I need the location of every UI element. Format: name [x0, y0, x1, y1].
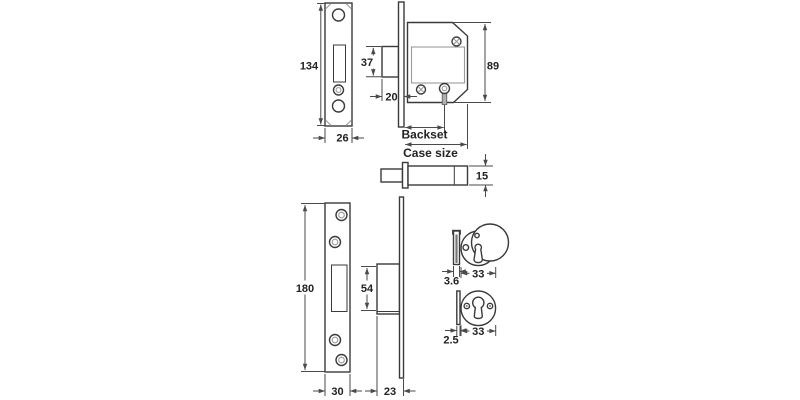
lock-case-side-view	[382, 2, 468, 127]
bolt-block	[377, 264, 400, 314]
dim-bolt-thickness: 15	[469, 154, 493, 197]
case-height-label: 89	[487, 61, 499, 73]
faceplate-width-label: 30	[331, 386, 343, 398]
faceplate-height-label: 180	[296, 283, 314, 295]
open-diameter-label: 33	[472, 326, 484, 338]
covered-escutcheon	[461, 224, 509, 266]
open-thickness-label: 2.5	[443, 335, 458, 347]
bolt-tip	[381, 169, 403, 182]
lock-technical-drawing: 134 26 37 20	[0, 0, 800, 400]
covered-thickness-label: 3.6	[444, 276, 459, 288]
strike-width-label: 26	[336, 133, 348, 145]
dim-faceplate-height: 180	[294, 204, 325, 372]
bolt-block-depth-label: 23	[384, 386, 396, 398]
dim-covered-thickness: 3.6	[442, 266, 467, 288]
covered-diameter-label: 33	[472, 268, 484, 280]
dim-strike-width: 26	[313, 128, 364, 145]
dim-bolt-block-height: 54	[358, 267, 376, 311]
forend-side-view	[377, 197, 404, 378]
strike-plate-front-view	[325, 3, 352, 126]
deadbolt-thrown	[382, 47, 399, 78]
open-escutcheon	[461, 291, 496, 326]
bolt-flange	[403, 163, 409, 189]
bolt-height-label: 37	[361, 57, 373, 69]
dim-covered-diameter: 33	[461, 267, 496, 280]
dim-open-thickness: 2.5	[443, 326, 467, 347]
bolt-thickness-label: 15	[476, 171, 488, 183]
bolt-throw-label: 20	[385, 92, 397, 104]
dim-backset: Backset	[401, 105, 447, 142]
bar-open-escutcheon-side	[457, 291, 460, 325]
backset-label: Backset	[401, 128, 447, 142]
forend-plate	[400, 197, 404, 378]
technical-drawing-canvas: 134 26 37 20	[0, 0, 800, 400]
bolt-body	[408, 166, 468, 185]
dim-strike-height: 134	[300, 4, 325, 126]
bar-covered-escutcheon-side	[453, 231, 460, 265]
keyhole-slot	[474, 244, 482, 262]
deadbolt-side-view	[381, 163, 468, 189]
dim-bolt-height: 37	[360, 47, 382, 77]
forend-edge-view	[399, 2, 405, 127]
faceplate-front-view	[325, 203, 350, 372]
dim-open-diameter: 33	[461, 325, 496, 338]
dim-bolt-block-depth: 23	[365, 316, 416, 398]
case-size-label: Case size	[403, 146, 458, 160]
strike-height-label: 134	[300, 61, 319, 73]
bolt-block-height-label: 54	[361, 283, 374, 295]
dim-faceplate-width: 30	[313, 374, 362, 398]
